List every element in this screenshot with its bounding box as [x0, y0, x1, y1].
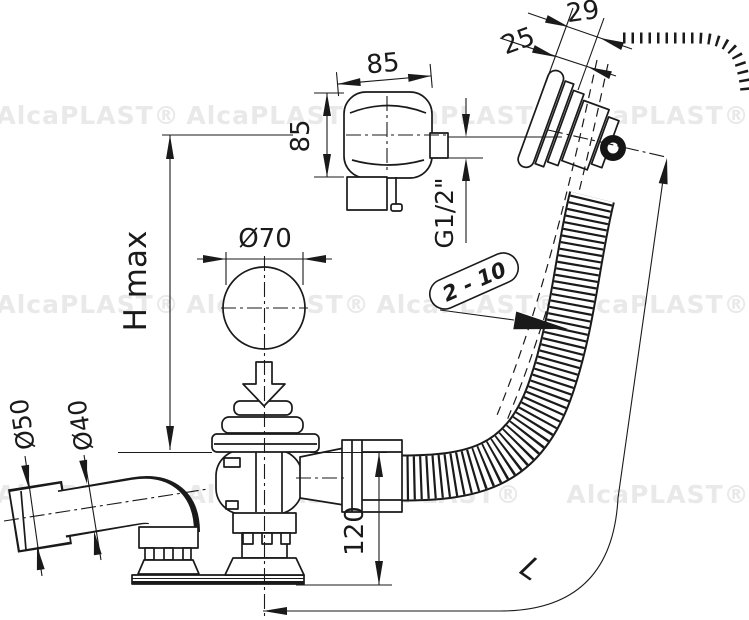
cable-oring	[600, 135, 626, 161]
control-box-side-tab	[430, 133, 448, 158]
watermark: AlcaPLAST®	[186, 101, 369, 130]
dim-height-max-label: H max	[118, 231, 154, 332]
watermark: AlcaPLAST®	[0, 101, 180, 130]
side-outlet-cone	[300, 448, 344, 505]
dim-wall-outer-label: 29	[564, 0, 601, 29]
bath-drain-technical-drawing: AlcaPLAST® AlcaPLAST® AlcaPLAST® AlcaPLA…	[0, 0, 749, 620]
hose-union-nut	[342, 440, 402, 512]
dim-hose-length-label: L	[514, 550, 548, 588]
dim-box-width-label: 85	[365, 48, 401, 81]
watermark: AlcaPLAST®	[566, 480, 749, 509]
elbow-skirt	[138, 560, 199, 574]
dim-trap-depth-label: 120	[340, 506, 370, 556]
dim-wall-outer: 29	[528, 0, 632, 90]
siphon-base-plate	[132, 575, 304, 584]
threaded-nipple	[347, 177, 387, 210]
dim-wall-inner-label: 25	[498, 22, 539, 62]
dim-box-width: 85	[335, 45, 432, 96]
bathtub-rim-hatch	[623, 38, 746, 93]
cable-pin-foot	[391, 204, 402, 211]
elbow-union-nut	[138, 527, 199, 574]
body-tab-upper	[224, 458, 240, 467]
body-tab-lower	[226, 501, 238, 509]
dim-box-height-label: 85	[286, 119, 316, 152]
technical-drawing-page: AlcaPLAST® AlcaPLAST® AlcaPLAST® AlcaPLA…	[0, 0, 749, 620]
drain-siphon	[212, 401, 402, 575]
corrugated-hose	[400, 197, 592, 478]
dim-pipe-small-label: Ø40	[62, 398, 99, 453]
dim-thread-size-label: G1/2"	[430, 177, 459, 248]
drain-plug	[212, 401, 319, 452]
drain-flange	[212, 434, 319, 452]
plug-disc	[222, 417, 303, 433]
dim-knob-diameter-label: Ø70	[238, 224, 292, 254]
dim-pipe-large-label: Ø50	[4, 397, 41, 452]
